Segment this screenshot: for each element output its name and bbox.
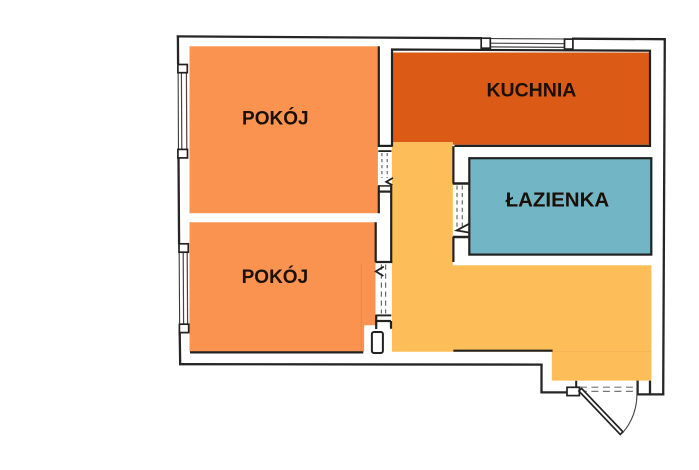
svg-text:KUCHNIA: KUCHNIA — [486, 79, 576, 101]
svg-text:POKÓJ: POKÓJ — [242, 107, 309, 129]
svg-text:ŁAZIENKA: ŁAZIENKA — [506, 189, 610, 212]
svg-text:POKÓJ: POKÓJ — [242, 266, 309, 288]
